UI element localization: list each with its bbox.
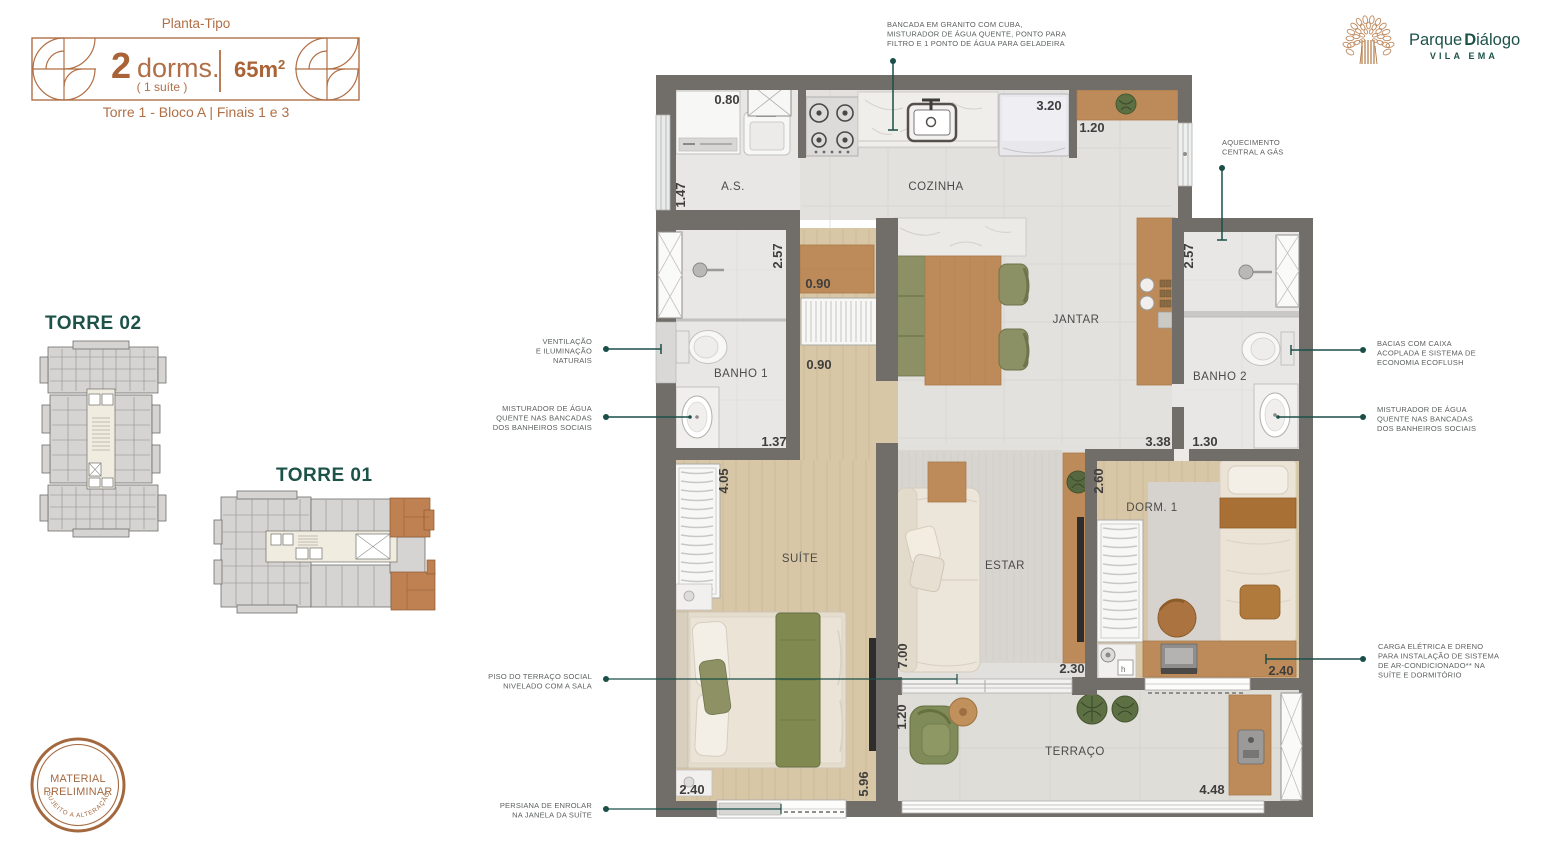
svg-text:2.30: 2.30 (1059, 661, 1084, 676)
svg-text:4.05: 4.05 (716, 468, 731, 493)
svg-text:QUENTE NAS BANCADAS: QUENTE NAS BANCADAS (1377, 415, 1473, 424)
svg-text:PARA INSTALAÇÃO DE SISTEMA: PARA INSTALAÇÃO DE SISTEMA (1378, 652, 1499, 661)
svg-text:COZINHA: COZINHA (908, 181, 963, 193)
svg-text:1.47: 1.47 (673, 182, 688, 207)
svg-text:CARGA ELÉTRICA E DRENO: CARGA ELÉTRICA E DRENO (1378, 642, 1483, 651)
svg-text:SUÍTE: SUÍTE (782, 552, 818, 565)
svg-text:0.90: 0.90 (806, 357, 831, 372)
svg-text:( 1 suíte ): ( 1 suíte ) (137, 80, 188, 94)
svg-text:PISO DO TERRAÇO SOCIAL: PISO DO TERRAÇO SOCIAL (488, 672, 592, 681)
svg-text:MISTURADOR DE ÁGUA QUENTE, PON: MISTURADOR DE ÁGUA QUENTE, PONTO PARA (887, 30, 1066, 39)
svg-text:2.40: 2.40 (679, 782, 704, 797)
svg-text:1.37: 1.37 (761, 434, 786, 449)
svg-text:1.30: 1.30 (1192, 434, 1217, 449)
svg-text:MISTURADOR DE ÁGUA: MISTURADOR DE ÁGUA (1377, 405, 1467, 414)
svg-text:TORRE 02: TORRE 02 (45, 313, 142, 334)
svg-text:VILA EMA: VILA EMA (1430, 51, 1498, 61)
svg-text:PRELIMINAR: PRELIMINAR (44, 786, 113, 798)
svg-text:DOS BANHEIROS SOCIAIS: DOS BANHEIROS SOCIAIS (493, 423, 592, 432)
svg-text:DE AR-CONDICIONADO** NA: DE AR-CONDICIONADO** NA (1378, 661, 1485, 670)
svg-text:65m2: 65m2 (234, 57, 285, 82)
svg-text:FILTRO E 1 PONTO DE ÁGUA PARA: FILTRO E 1 PONTO DE ÁGUA PARA GELADEIRA (887, 39, 1065, 48)
svg-text:TORRE 01: TORRE 01 (276, 465, 373, 486)
svg-text:PERSIANA DE ENROLAR: PERSIANA DE ENROLAR (500, 801, 593, 810)
svg-text:AQUECIMENTO: AQUECIMENTO (1222, 138, 1280, 147)
svg-text:BANCADA EM GRANITO COM CUBA,: BANCADA EM GRANITO COM CUBA, (887, 20, 1022, 29)
svg-text:ECONOMIA ECOFLUSH: ECONOMIA ECOFLUSH (1377, 358, 1464, 367)
svg-text:2.40: 2.40 (1268, 663, 1293, 678)
svg-text:BACIAS COM CAIXA: BACIAS COM CAIXA (1377, 339, 1452, 348)
svg-text:0.80: 0.80 (714, 92, 739, 107)
svg-text:DOS BANHEIROS SOCIAIS: DOS BANHEIROS SOCIAIS (1377, 424, 1476, 433)
svg-text:3.38: 3.38 (1145, 434, 1170, 449)
svg-text:QUENTE NAS BANCADAS: QUENTE NAS BANCADAS (496, 414, 592, 423)
svg-text:VENTILAÇÃO: VENTILAÇÃO (542, 337, 592, 346)
svg-text:TERRAÇO: TERRAÇO (1045, 746, 1105, 758)
svg-text:4.48: 4.48 (1199, 782, 1224, 797)
svg-text:E ILUMINAÇÃO: E ILUMINAÇÃO (536, 347, 592, 356)
svg-text:h: h (1121, 665, 1125, 674)
svg-text:Planta-Tipo: Planta-Tipo (162, 16, 231, 31)
svg-text:CENTRAL A GÁS: CENTRAL A GÁS (1222, 148, 1284, 157)
svg-text:dorms.: dorms. (137, 53, 220, 83)
svg-text:DORM. 1: DORM. 1 (1126, 502, 1177, 514)
svg-text:ACOPLADA E SISTEMA DE: ACOPLADA E SISTEMA DE (1377, 349, 1476, 358)
svg-text:0.90: 0.90 (805, 276, 830, 291)
svg-text:5.96: 5.96 (856, 771, 871, 796)
svg-text:2.57: 2.57 (770, 243, 785, 268)
svg-text:1.20: 1.20 (894, 704, 909, 729)
svg-text:Torre 1 - Bloco A | Finais 1 e: Torre 1 - Bloco A | Finais 1 e 3 (103, 104, 290, 120)
svg-text:NATURAIS: NATURAIS (553, 356, 592, 365)
svg-text:2.57: 2.57 (1181, 243, 1196, 268)
svg-text:2: 2 (111, 45, 131, 86)
svg-text:SUÍTE E DORMITÓRIO: SUÍTE E DORMITÓRIO (1378, 671, 1462, 680)
svg-text:MATERIAL: MATERIAL (50, 773, 106, 785)
svg-text:A.S.: A.S. (721, 181, 745, 193)
svg-text:NA JANELA DA SUÍTE: NA JANELA DA SUÍTE (512, 811, 592, 820)
svg-text:1.20: 1.20 (1079, 120, 1104, 135)
svg-text:ESTAR: ESTAR (985, 560, 1025, 572)
svg-text:MISTURADOR DE ÁGUA: MISTURADOR DE ÁGUA (502, 404, 592, 413)
svg-text:BANHO 1: BANHO 1 (714, 368, 768, 380)
svg-text:NIVELADO COM A SALA: NIVELADO COM A SALA (503, 682, 592, 691)
svg-text:ParqueDiálogo: ParqueDiálogo (1409, 31, 1520, 49)
svg-text:BANHO 2: BANHO 2 (1193, 371, 1247, 383)
svg-text:3.20: 3.20 (1036, 98, 1061, 113)
svg-text:JANTAR: JANTAR (1053, 314, 1100, 326)
svg-text:2.60: 2.60 (1091, 468, 1106, 493)
svg-text:7.00: 7.00 (895, 643, 910, 668)
